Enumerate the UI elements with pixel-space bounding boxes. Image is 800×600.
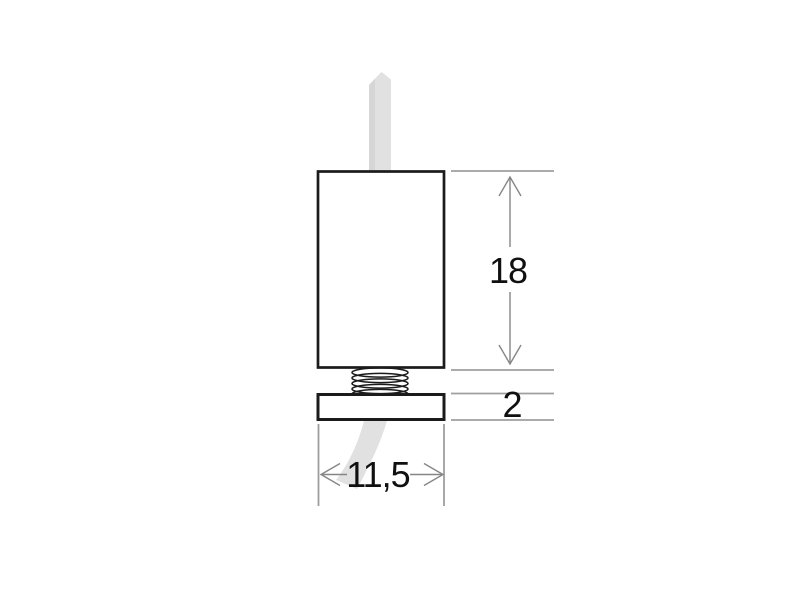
height-dimension-label: 18 [489, 250, 527, 291]
ribbon-top-right-facet [375, 72, 391, 171]
dimension-height: 18 [451, 171, 554, 370]
drawing-canvas: 18 2 11,5 [0, 0, 800, 600]
thread-coil [352, 379, 408, 388]
ribbon-top-left-facet [369, 79, 375, 172]
body-outline [318, 172, 444, 368]
dimension-thickness: 2 [451, 384, 554, 425]
technical-drawing: 18 2 11,5 [0, 0, 800, 600]
thread-coil [352, 373, 408, 382]
cable-ribbon-top [369, 72, 391, 171]
base-plate-outline [318, 395, 444, 420]
width-dimension-label: 11,5 [346, 454, 409, 495]
thread-coil [352, 368, 408, 377]
thickness-dimension-label: 2 [502, 384, 521, 425]
